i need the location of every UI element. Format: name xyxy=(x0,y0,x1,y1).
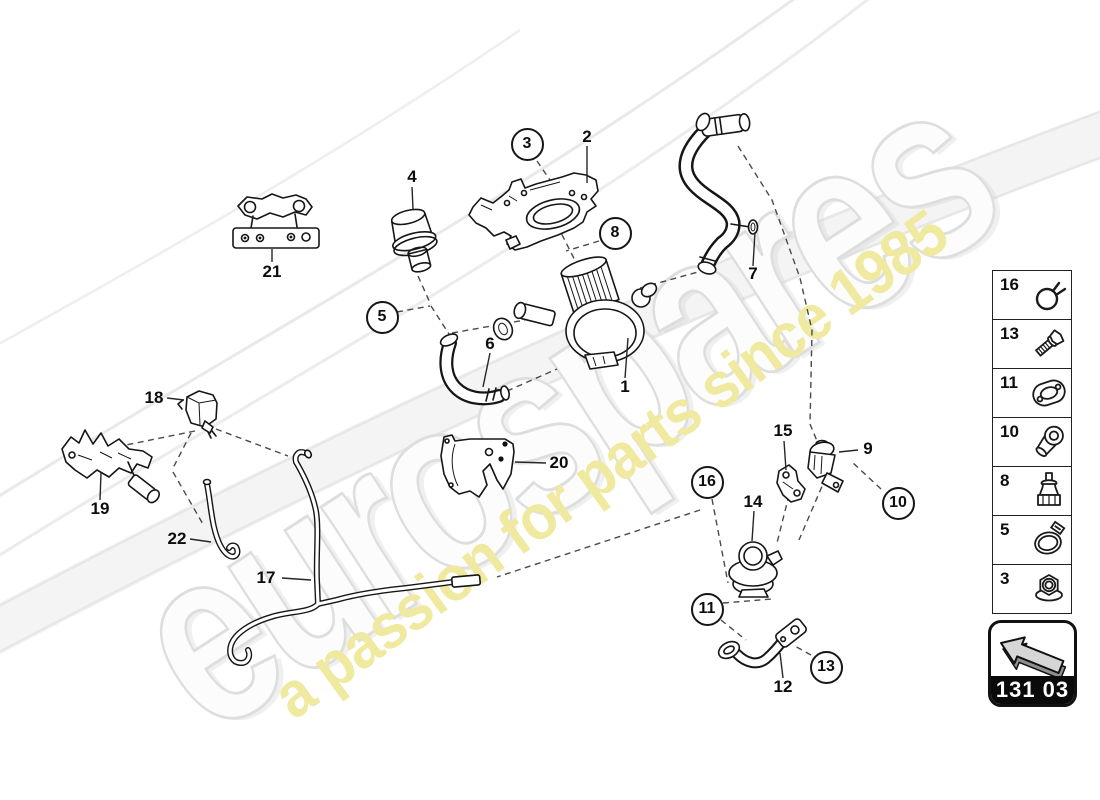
legend-num-16: 16 xyxy=(1000,275,1019,295)
callout-5[interactable]: 5 xyxy=(366,301,399,334)
part-label-19[interactable]: 19 xyxy=(91,499,110,519)
hose-clip-icon xyxy=(1027,273,1071,317)
parts-diagram-page: eurospares a passion for parts since 198… xyxy=(0,0,1100,800)
part-drawing-valve-18 xyxy=(178,391,217,438)
legend-row-8[interactable]: 8 xyxy=(993,467,1071,516)
legend-row-3[interactable]: 3 xyxy=(993,565,1071,613)
part-label-6[interactable]: 6 xyxy=(485,334,494,354)
gasket-icon xyxy=(1027,371,1071,415)
part-label-20[interactable]: 20 xyxy=(550,453,569,473)
part-drawing-bracket-19 xyxy=(62,430,162,505)
callout-16[interactable]: 16 xyxy=(691,466,724,499)
part-drawing-bracket-21 xyxy=(233,194,319,248)
legend-num-3: 3 xyxy=(1000,569,1009,589)
part-label-4[interactable]: 4 xyxy=(407,167,416,187)
legend-num-8: 8 xyxy=(1000,471,1009,491)
part-label-7[interactable]: 7 xyxy=(748,264,757,284)
legend-row-16[interactable]: 16 xyxy=(993,271,1071,320)
part-label-2[interactable]: 2 xyxy=(582,127,591,147)
part-label-9[interactable]: 9 xyxy=(863,439,872,459)
callout-11[interactable]: 11 xyxy=(691,593,724,626)
part-drawing-sensor-15 xyxy=(777,465,805,502)
part-label-17[interactable]: 17 xyxy=(257,568,276,588)
diagram-code-badge: 131 03 xyxy=(991,676,1074,704)
part-label-18[interactable]: 18 xyxy=(145,388,164,408)
flange-nut-icon xyxy=(1027,567,1071,611)
part-drawing-valve-9 xyxy=(808,440,843,492)
part-label-1[interactable]: 1 xyxy=(620,377,629,397)
part-drawing-valve-4 xyxy=(385,205,443,276)
callout-8[interactable]: 8 xyxy=(599,217,632,250)
part-drawing-pipe-22 xyxy=(204,480,238,557)
part-label-21[interactable]: 21 xyxy=(263,262,282,282)
diagram-group-box[interactable]: 131 03 xyxy=(988,620,1077,707)
hose-clamp-icon xyxy=(1027,518,1071,562)
part-label-12[interactable]: 12 xyxy=(774,677,793,697)
callout-3[interactable]: 3 xyxy=(511,128,544,161)
legend-row-13[interactable]: 13 xyxy=(993,320,1071,369)
legend-num-13: 13 xyxy=(1000,324,1019,344)
legend-row-11[interactable]: 11 xyxy=(993,369,1071,418)
back-arrow-icon xyxy=(991,623,1074,679)
part-drawing-hose-7 xyxy=(686,111,758,276)
legend-num-11: 11 xyxy=(1000,373,1018,393)
part-drawing-air-pump-1 xyxy=(490,253,659,369)
legend-row-10[interactable]: 10 xyxy=(993,418,1071,467)
part-drawing-pump-bracket-2 xyxy=(469,173,598,250)
part-label-15[interactable]: 15 xyxy=(774,421,793,441)
part-label-22[interactable]: 22 xyxy=(168,529,187,549)
rubber-mount-icon xyxy=(1027,469,1071,513)
legend-num-5: 5 xyxy=(1000,520,1009,540)
part-drawing-combi-valve-14 xyxy=(729,542,782,597)
callout-10[interactable]: 10 xyxy=(882,487,915,520)
part-drawing-hose-6 xyxy=(439,332,511,401)
hardware-legend: 16 13 11 xyxy=(992,270,1072,614)
stud-bushing-icon xyxy=(1027,420,1071,464)
callout-13[interactable]: 13 xyxy=(810,651,843,684)
part-drawing-heat-shield-20 xyxy=(441,435,514,497)
exploded-parts-drawing xyxy=(0,0,1100,800)
legend-row-5[interactable]: 5 xyxy=(993,516,1071,565)
flange-bolt-icon xyxy=(1027,322,1071,366)
part-drawing-egr-pipe-12 xyxy=(716,617,808,662)
part-drawing-pipe-17 xyxy=(230,449,480,663)
part-label-14[interactable]: 14 xyxy=(744,492,763,512)
legend-num-10: 10 xyxy=(1000,422,1019,442)
